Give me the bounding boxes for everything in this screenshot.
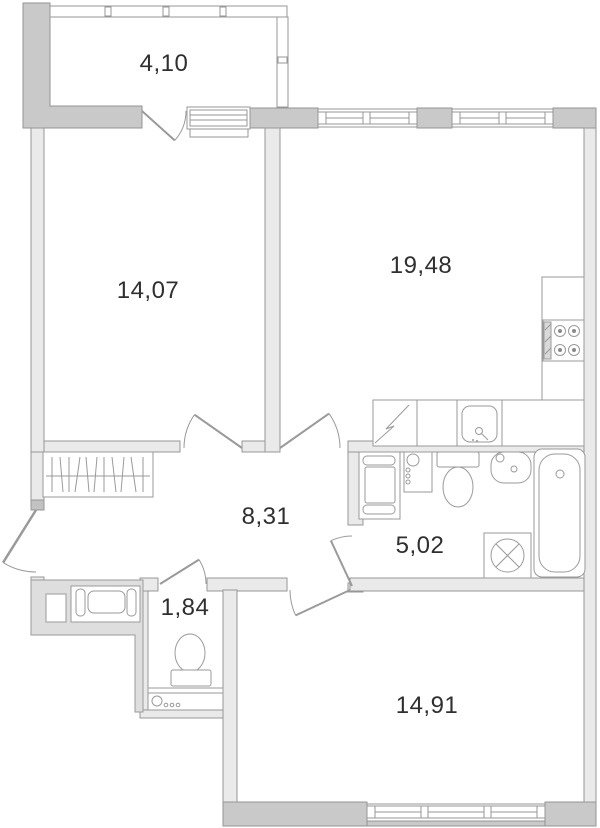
wall-hall-top-a (44, 441, 180, 452)
wall-bottom-right (545, 802, 596, 826)
wall-room-left (223, 590, 237, 802)
elevator-icon (71, 586, 140, 622)
wall-top-pier-1 (248, 108, 318, 128)
cabinet-icon (359, 452, 400, 519)
wall-south-c (350, 578, 584, 591)
toilet-icon (437, 452, 479, 507)
kitchen-fixtures (373, 277, 584, 446)
room-label-bathroom: 5,02 (396, 532, 445, 560)
railing-tick (163, 7, 169, 16)
wall-south-b (207, 578, 287, 591)
door-kitchen-living (280, 414, 340, 448)
wc-fixtures (148, 634, 223, 707)
railing-tick (105, 7, 111, 16)
door-wc (160, 560, 206, 584)
shaft (46, 594, 66, 622)
building-core (31, 580, 143, 712)
window-top-2 (452, 109, 553, 127)
wardrobe-icon (43, 452, 153, 497)
doors (3, 111, 352, 615)
wall-top-right-corner (553, 108, 596, 128)
wall-wc-bottom (140, 710, 237, 718)
room-label-hallway: 8,31 (242, 503, 291, 531)
wall-under-window (367, 821, 545, 826)
railing-tick (278, 57, 287, 63)
bathtub-icon (534, 449, 585, 577)
floor-plan: 4,10 14,07 19,48 8,31 5,02 1,84 14,91 (0, 0, 600, 828)
bathroom-fixtures (359, 449, 585, 578)
stove-icon (543, 320, 584, 361)
washbasin-icon (491, 452, 531, 483)
window-top-1 (318, 109, 417, 127)
window-bottom (367, 804, 545, 818)
wall-top-pier-2 (417, 108, 452, 128)
room-label-room: 14,91 (396, 692, 459, 720)
room-label-bedroom: 14,07 (117, 277, 180, 305)
wall-bottom-left (223, 802, 367, 826)
wc-divider (148, 688, 223, 693)
door-bedroom (184, 415, 242, 448)
kitchen-counter-bottom (373, 400, 584, 446)
room-label-balcony: 4,10 (140, 50, 189, 78)
door-balcony (142, 111, 186, 140)
wall-between-rooms (265, 128, 280, 452)
door-room (290, 590, 350, 615)
wall-hall-top-b (242, 441, 265, 452)
door-post-entrance (31, 500, 44, 510)
water-riser-icon (152, 696, 180, 707)
room-label-kitchen-living: 19,48 (390, 252, 453, 280)
door-bathroom (331, 536, 352, 586)
wall-balcony-L (23, 3, 142, 128)
wall-right (584, 128, 596, 802)
water-riser-icon (404, 452, 432, 492)
window-sill (190, 129, 248, 137)
washing-machine-icon (484, 533, 531, 578)
toilet-icon (171, 634, 211, 686)
railing-tick (220, 7, 226, 16)
door-entrance (3, 510, 36, 572)
floorplan-svg (0, 0, 600, 828)
wall-bedroom-left (31, 128, 44, 452)
room-label-wc: 1,84 (161, 594, 210, 622)
balcony-window (187, 107, 250, 137)
